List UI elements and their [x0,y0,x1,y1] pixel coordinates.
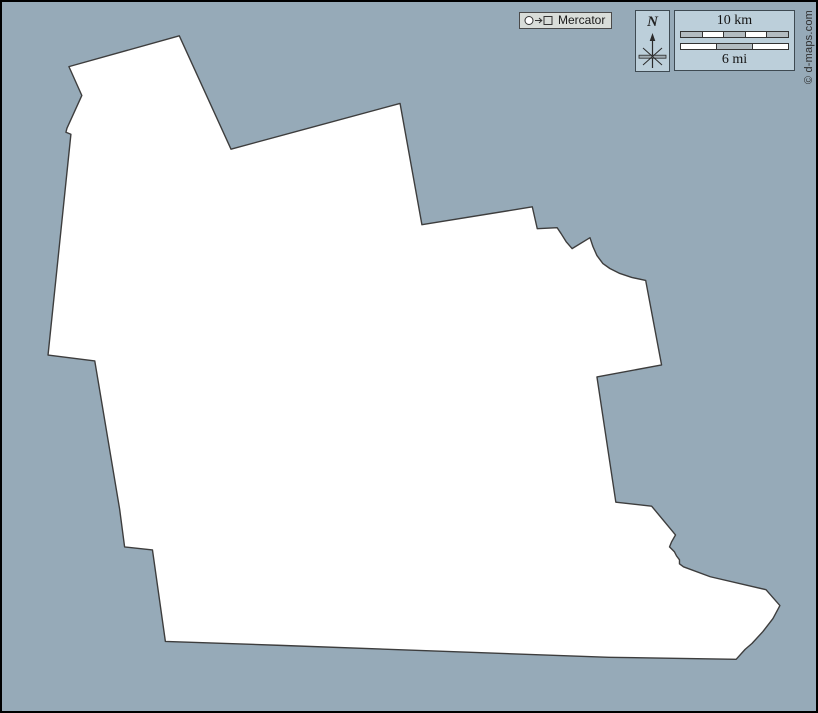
scale-segment-white [746,32,768,37]
compass-north-label: N [636,12,669,32]
copyright-text: © d-maps.com [803,10,815,84]
region-polygon [48,36,780,659]
projection-badge: Mercator [519,12,612,29]
map-canvas: Mercator N 10 km 6 mi © d-maps.com [0,0,818,713]
scale-segment-white [703,32,725,37]
scale-segment-gray [681,32,703,37]
scale-mi-label: 6 mi [675,50,794,70]
scale-segment-gray [767,32,788,37]
scale-mi-bar [680,43,789,50]
compass-rose: N [635,10,670,72]
north-arrow-star-icon [636,32,669,70]
scale-segment-white [681,44,717,49]
scale-km-bar [680,31,789,38]
scale-segment-white [753,44,788,49]
scale-km-label: 10 km [675,11,794,31]
circle-to-square-projection-icon [524,15,554,26]
scale-segment-gray [717,44,753,49]
projection-label: Mercator [558,13,605,28]
scale-segment-gray [724,32,746,37]
region-outline-svg [2,2,816,711]
scale-bar: 10 km 6 mi [674,10,795,71]
